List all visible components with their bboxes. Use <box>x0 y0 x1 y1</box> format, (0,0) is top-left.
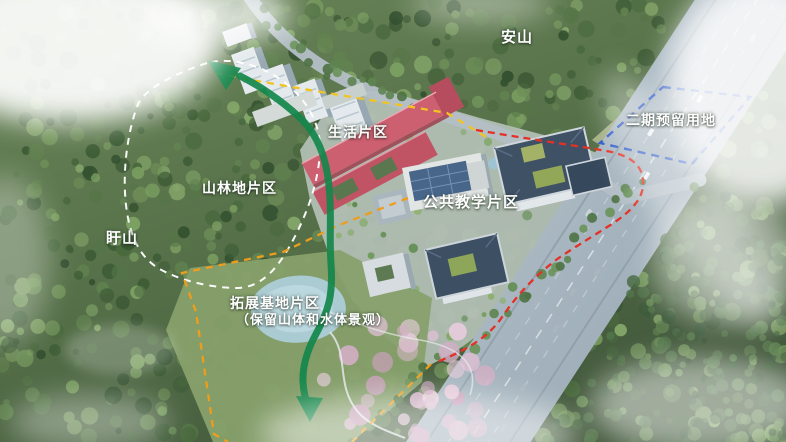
label-teaching-zone: 公共教学片区 <box>423 195 519 212</box>
masterplan-rendering: 安山 二期预留用地 生活片区 山林地片区 盱山 公共教学片区 拓展基地片区 （保… <box>0 0 786 442</box>
label-living-zone: 生活片区 <box>328 125 388 140</box>
label-xushan-mountain: 盱山 <box>106 231 138 248</box>
label-expansion-zone: 拓展基地片区 <box>230 296 320 311</box>
label-anshan-mountain: 安山 <box>501 30 533 47</box>
label-phase2-reserved-land: 二期预留用地 <box>626 113 716 128</box>
label-forest-zone: 山林地片区 <box>202 181 277 196</box>
label-expansion-note: （保留山体和水体景观） <box>236 313 390 327</box>
aerial-rendering-canvas <box>0 0 786 442</box>
